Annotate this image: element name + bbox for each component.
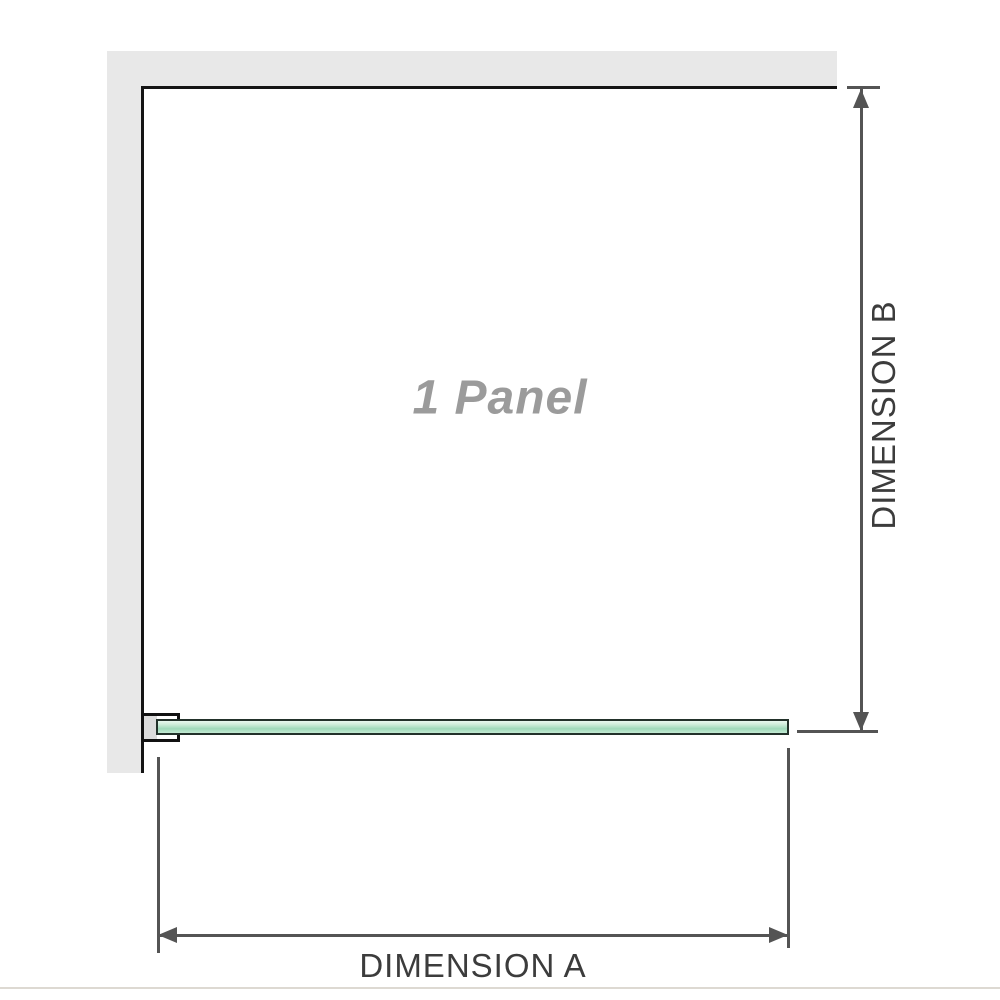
image-bottom-hairline xyxy=(0,987,1000,989)
arrow-down-icon xyxy=(853,712,869,731)
dimension-a-label: DIMENSION A xyxy=(359,947,586,985)
wall-top-edge-line xyxy=(141,86,837,89)
glass-panel xyxy=(156,719,789,735)
arrow-left-icon xyxy=(158,927,177,943)
dimension-b-label: DIMENSION B xyxy=(865,300,903,529)
dimension-a-extension-right xyxy=(787,748,790,948)
dimension-a-line xyxy=(158,934,788,937)
shower-panel-diagram: 1 Panel DIMENSION B DIMENSION A xyxy=(0,0,1000,1000)
wall-left xyxy=(107,51,142,773)
dimension-a-extension-left xyxy=(157,757,160,953)
dimension-b-line xyxy=(860,88,863,731)
wall-left-edge-line xyxy=(141,86,144,773)
dimension-b-bottom-tick xyxy=(797,730,878,733)
wall-top xyxy=(107,51,837,86)
arrow-up-icon xyxy=(853,89,869,108)
panel-count-label: 1 Panel xyxy=(412,371,587,426)
arrow-right-icon xyxy=(769,927,788,943)
